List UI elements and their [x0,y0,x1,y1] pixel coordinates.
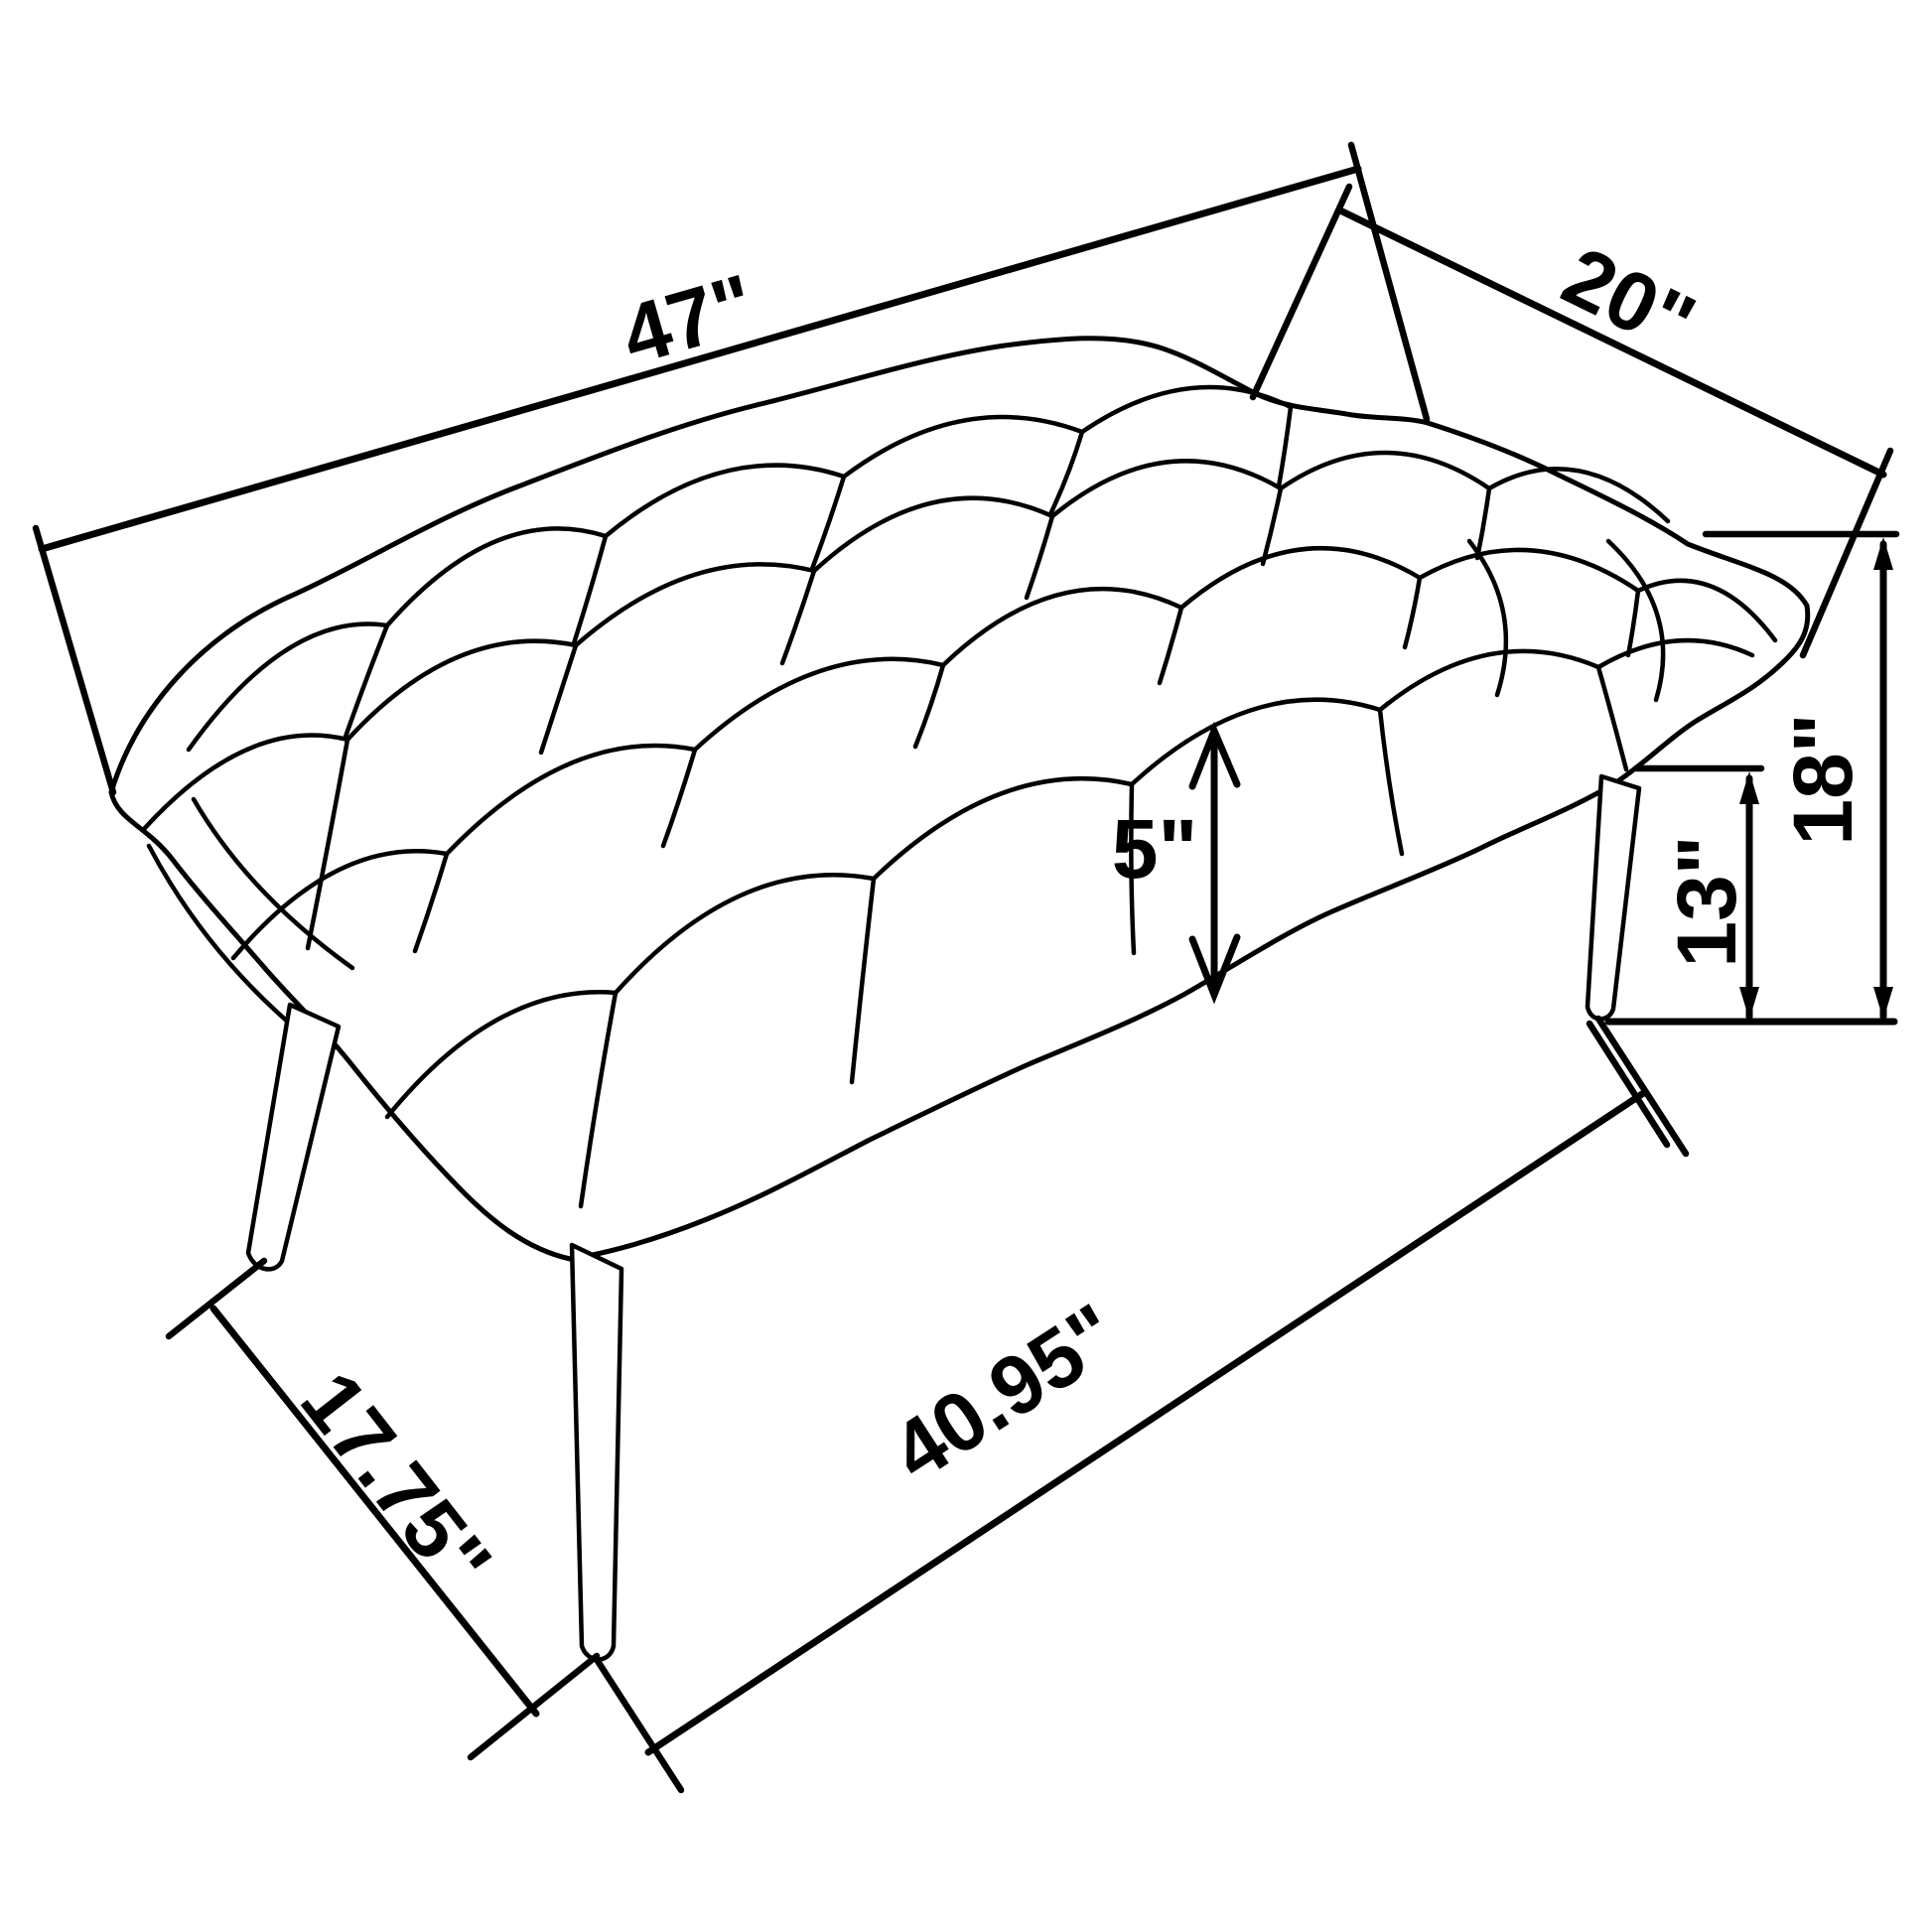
dim18-label: 18" [1776,713,1869,845]
dim13-arrow-up [1739,771,1759,804]
cushion-outline [111,339,1808,1259]
dim5-label: 5" [1112,802,1198,896]
dim20-label: 20" [1549,228,1709,370]
front-right-leg [1587,776,1639,1019]
rear-left-leg [248,1005,339,1269]
dim1775-label: 17.75" [283,1354,509,1607]
dim47-label: 47" [612,256,764,382]
dim18-arrow-down [1873,987,1893,1020]
dim4095-line [648,1092,1645,1752]
dim13-label: 13" [1660,835,1753,967]
floor-extension-left [1589,1024,1667,1145]
diagram-stage: 47" 20" 18" 13" [0,0,1932,1932]
dim20-extension-right [1803,451,1890,655]
dim47-extension-right [1351,145,1427,419]
dim20-extension-left [1253,187,1349,397]
dimension-span-depth-1775: 17.75" [169,1261,597,1757]
dim4095-tick-end [1598,1019,1686,1154]
bench-cushion [111,339,1808,1259]
front-left-leg [572,1245,621,1660]
dim13-arrow-down [1739,987,1759,1020]
dim1775-tick-start [169,1261,264,1336]
dim4095-label: 40.95" [876,1286,1135,1499]
bench-dimension-drawing: 47" 20" 18" 13" [0,0,1932,1932]
dim18-arrow-up [1873,537,1893,570]
dim47-extension-left [36,528,113,792]
dim4095-tick-start [596,1658,681,1790]
